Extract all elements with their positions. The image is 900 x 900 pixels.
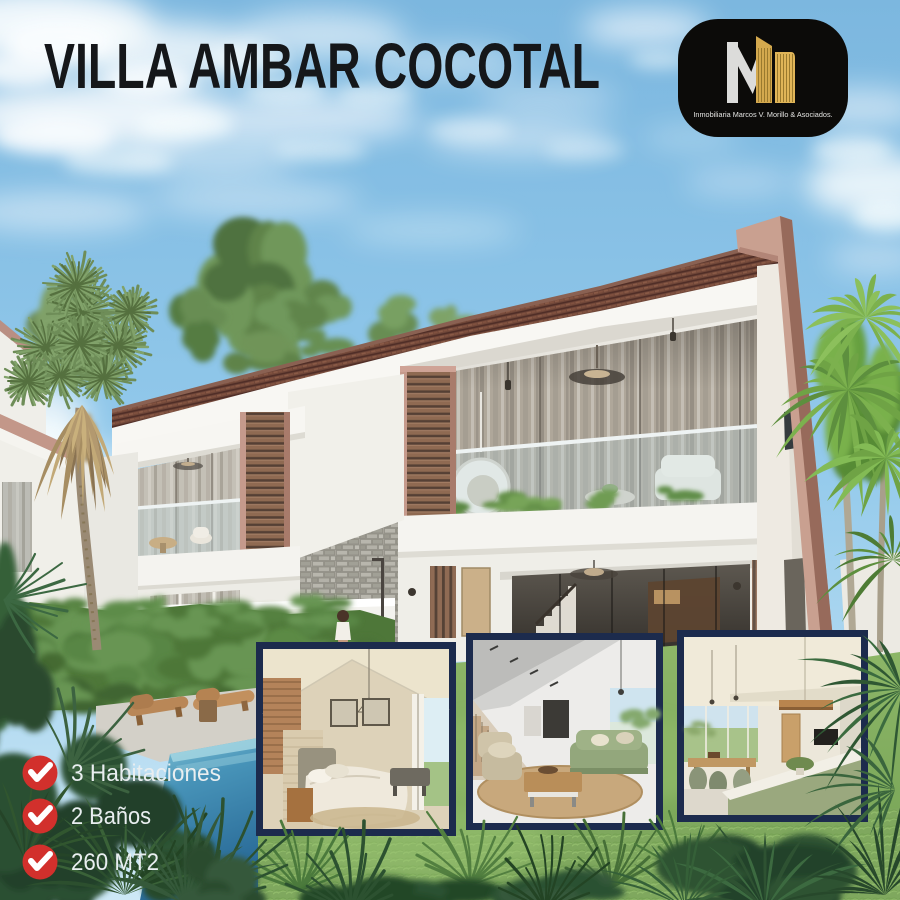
svg-text:2 Baños: 2 Baños	[71, 803, 151, 830]
svg-text:VILLA AMBAR COCOTAL: VILLA AMBAR COCOTAL	[44, 30, 600, 102]
svg-text:260 MT2: 260 MT2	[71, 849, 159, 876]
svg-text:3 Habitaciones: 3 Habitaciones	[71, 760, 221, 787]
svg-text:Inmobiliaria Marcos V. Morillo: Inmobiliaria Marcos V. Morillo & Asociad…	[693, 110, 832, 119]
